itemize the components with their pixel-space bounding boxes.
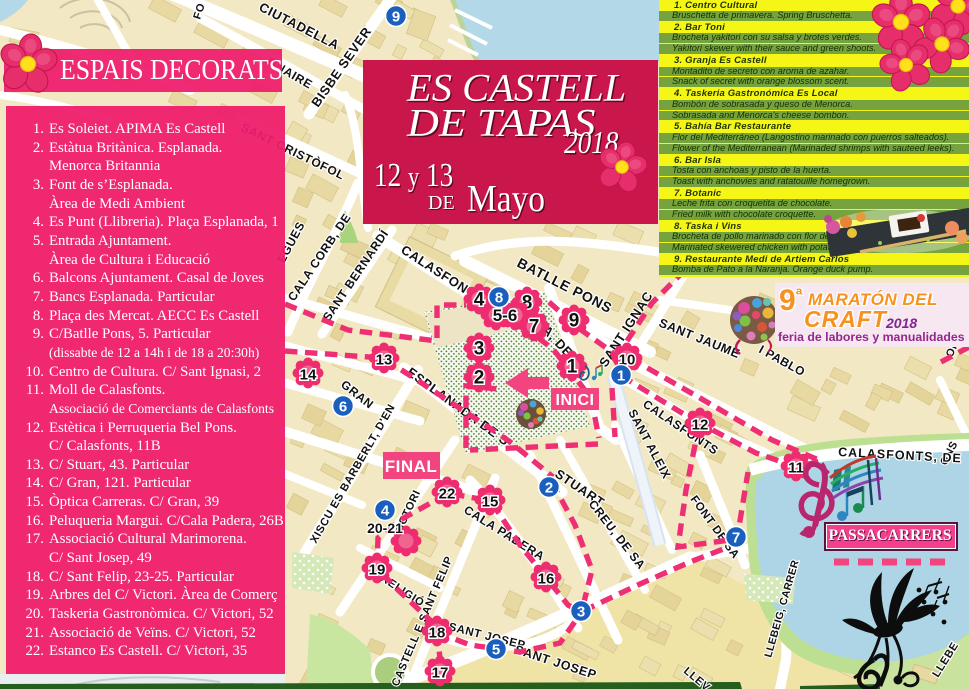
- svg-text:5: 5: [492, 642, 500, 659]
- svg-text:7: 7: [529, 317, 540, 338]
- svg-text:19: 19: [369, 562, 386, 579]
- svg-text:17: 17: [432, 665, 449, 682]
- svg-text:7: 7: [732, 530, 740, 547]
- svg-text:1: 1: [617, 368, 625, 385]
- svg-text:3: 3: [577, 604, 585, 621]
- svg-text:22: 22: [439, 486, 456, 503]
- svg-text:FINAL: FINAL: [385, 457, 438, 476]
- svg-text:16: 16: [538, 571, 555, 588]
- svg-text:2: 2: [545, 480, 553, 497]
- svg-text:5-6: 5-6: [493, 306, 518, 325]
- svg-text:20-21: 20-21: [367, 520, 403, 536]
- svg-text:9: 9: [392, 9, 400, 26]
- svg-text:15: 15: [482, 494, 499, 511]
- svg-text:4: 4: [474, 290, 485, 311]
- svg-text:1: 1: [567, 357, 578, 378]
- svg-text:INICI: INICI: [556, 392, 595, 409]
- svg-text:13: 13: [376, 352, 393, 369]
- svg-text:12: 12: [692, 417, 709, 434]
- svg-text:2: 2: [474, 368, 485, 389]
- svg-text:18: 18: [429, 625, 446, 642]
- svg-text:6: 6: [339, 399, 347, 416]
- svg-text:14: 14: [300, 367, 317, 384]
- svg-text:8: 8: [495, 290, 503, 307]
- svg-text:9: 9: [569, 311, 580, 332]
- svg-text:11: 11: [788, 460, 804, 477]
- svg-text:3: 3: [474, 339, 485, 360]
- svg-text:4: 4: [381, 503, 390, 520]
